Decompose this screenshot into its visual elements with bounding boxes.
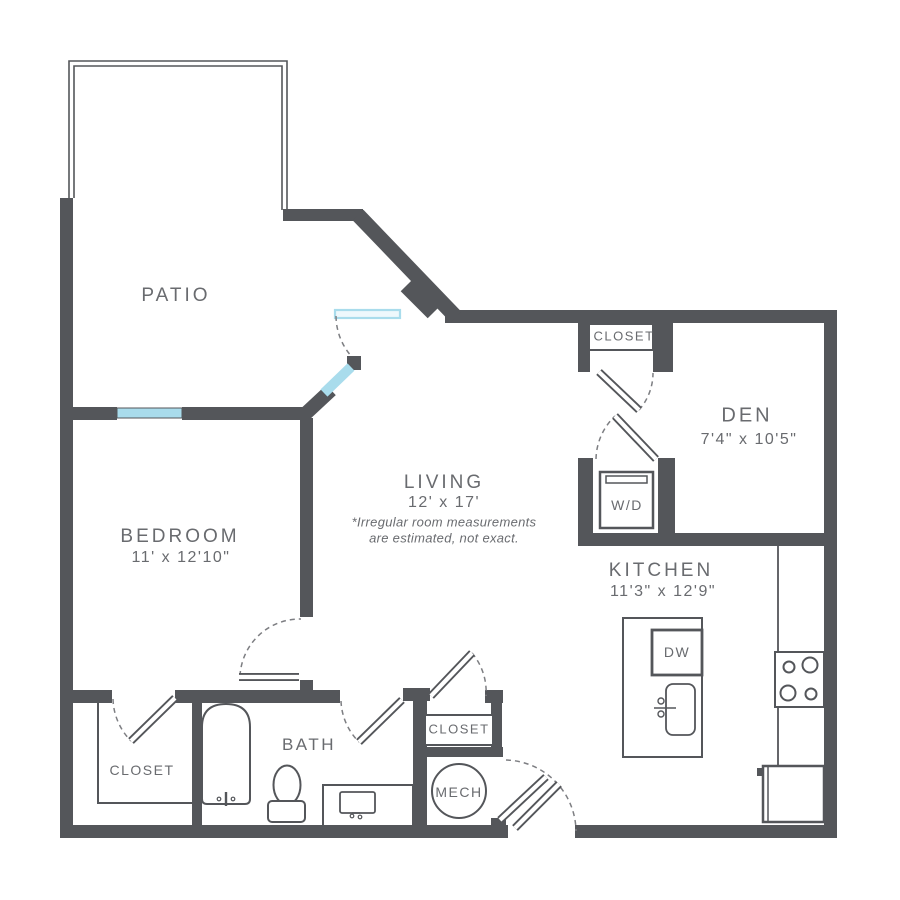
wd-door-arc [596, 416, 615, 459]
bedroom-closet-interior [98, 701, 193, 803]
room-label-kitchen: KITCHEN [609, 560, 713, 582]
room-dims-den: 7'4" x 10'5" [701, 431, 798, 449]
patio-door-open-leaf [335, 310, 400, 318]
room-label-bath: BATH [282, 735, 336, 755]
toilet-icon [268, 766, 305, 823]
room-label-den: DEN [721, 405, 772, 428]
bath-door-arc [341, 701, 359, 742]
room-label-bedroom: BEDROOM [120, 526, 239, 548]
living-note-line1: *Irregular room measurements [352, 516, 537, 531]
den-closet-door-arc [639, 373, 653, 410]
bath-door [359, 700, 402, 742]
room-label-hall-closet: CLOSET [428, 723, 489, 738]
label-dishwasher: DW [664, 644, 690, 660]
fridge-icon [757, 766, 824, 822]
den-closet-door [599, 372, 639, 410]
patio-door-swing-arc [336, 316, 352, 357]
bedroom-window [117, 408, 182, 418]
room-label-mech: MECH [435, 784, 482, 800]
bedroom-closet-door-arc [113, 699, 131, 741]
room-dims-kitchen: 11'3" x 12'9" [610, 583, 716, 601]
wd-closet-door [615, 416, 656, 459]
floor-plan: PATIO BEDROOM 11' x 12'10" LIVING 12' x … [0, 0, 900, 900]
label-washer-dryer: W/D [611, 497, 643, 513]
entry-door-arc [506, 760, 576, 831]
bathtub-icon [202, 704, 250, 806]
room-label-bedroom-closet: CLOSET [109, 762, 174, 778]
room-label-living: LIVING [404, 472, 484, 494]
patio-door [324, 310, 400, 393]
stove-icon [775, 652, 824, 707]
bath-vanity-icon [323, 785, 413, 826]
room-label-patio: PATIO [141, 285, 210, 307]
kitchen-island [623, 618, 702, 757]
room-dims-bedroom: 11' x 12'10" [132, 549, 231, 567]
patio-railing [69, 61, 287, 210]
patio-door-closed-leaf [324, 367, 351, 393]
bedroom-door-arc [240, 619, 301, 676]
hall-closet-door [431, 653, 472, 696]
room-label-den-closet: CLOSET [593, 330, 654, 345]
room-dims-living: 12' x 17' [408, 494, 480, 512]
hall-closet-door-arc [472, 653, 486, 696]
bedroom-closet-door [131, 698, 175, 741]
living-note-line2: are estimated, not exact. [369, 532, 519, 547]
